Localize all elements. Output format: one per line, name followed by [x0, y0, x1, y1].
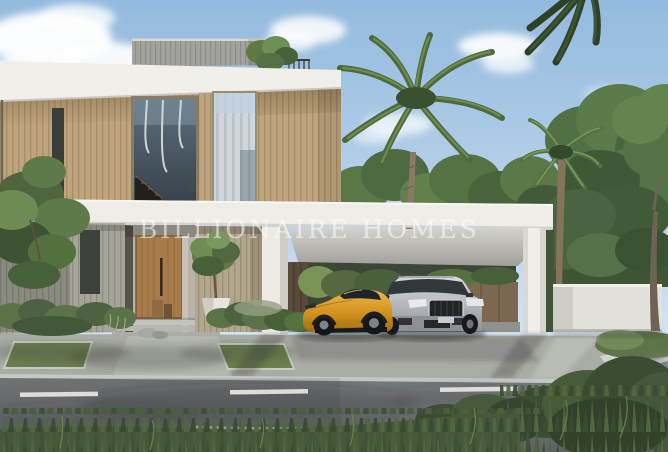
door-side-boxes — [152, 300, 163, 318]
curtain-window — [212, 91, 257, 203]
suv-grille — [429, 300, 463, 318]
stair-window — [131, 96, 199, 204]
door-handle — [160, 258, 163, 296]
suv-license-plate — [438, 317, 454, 323]
roof-penthouse — [132, 38, 263, 67]
property-photo: BILLIONAIRE HOMES — [0, 0, 668, 452]
boundary-wall — [553, 284, 662, 332]
slit-window-lower — [80, 230, 100, 294]
carport-canopy-underside — [288, 229, 553, 266]
trees-gap — [546, 230, 554, 332]
suv-headlight-right — [466, 298, 484, 306]
